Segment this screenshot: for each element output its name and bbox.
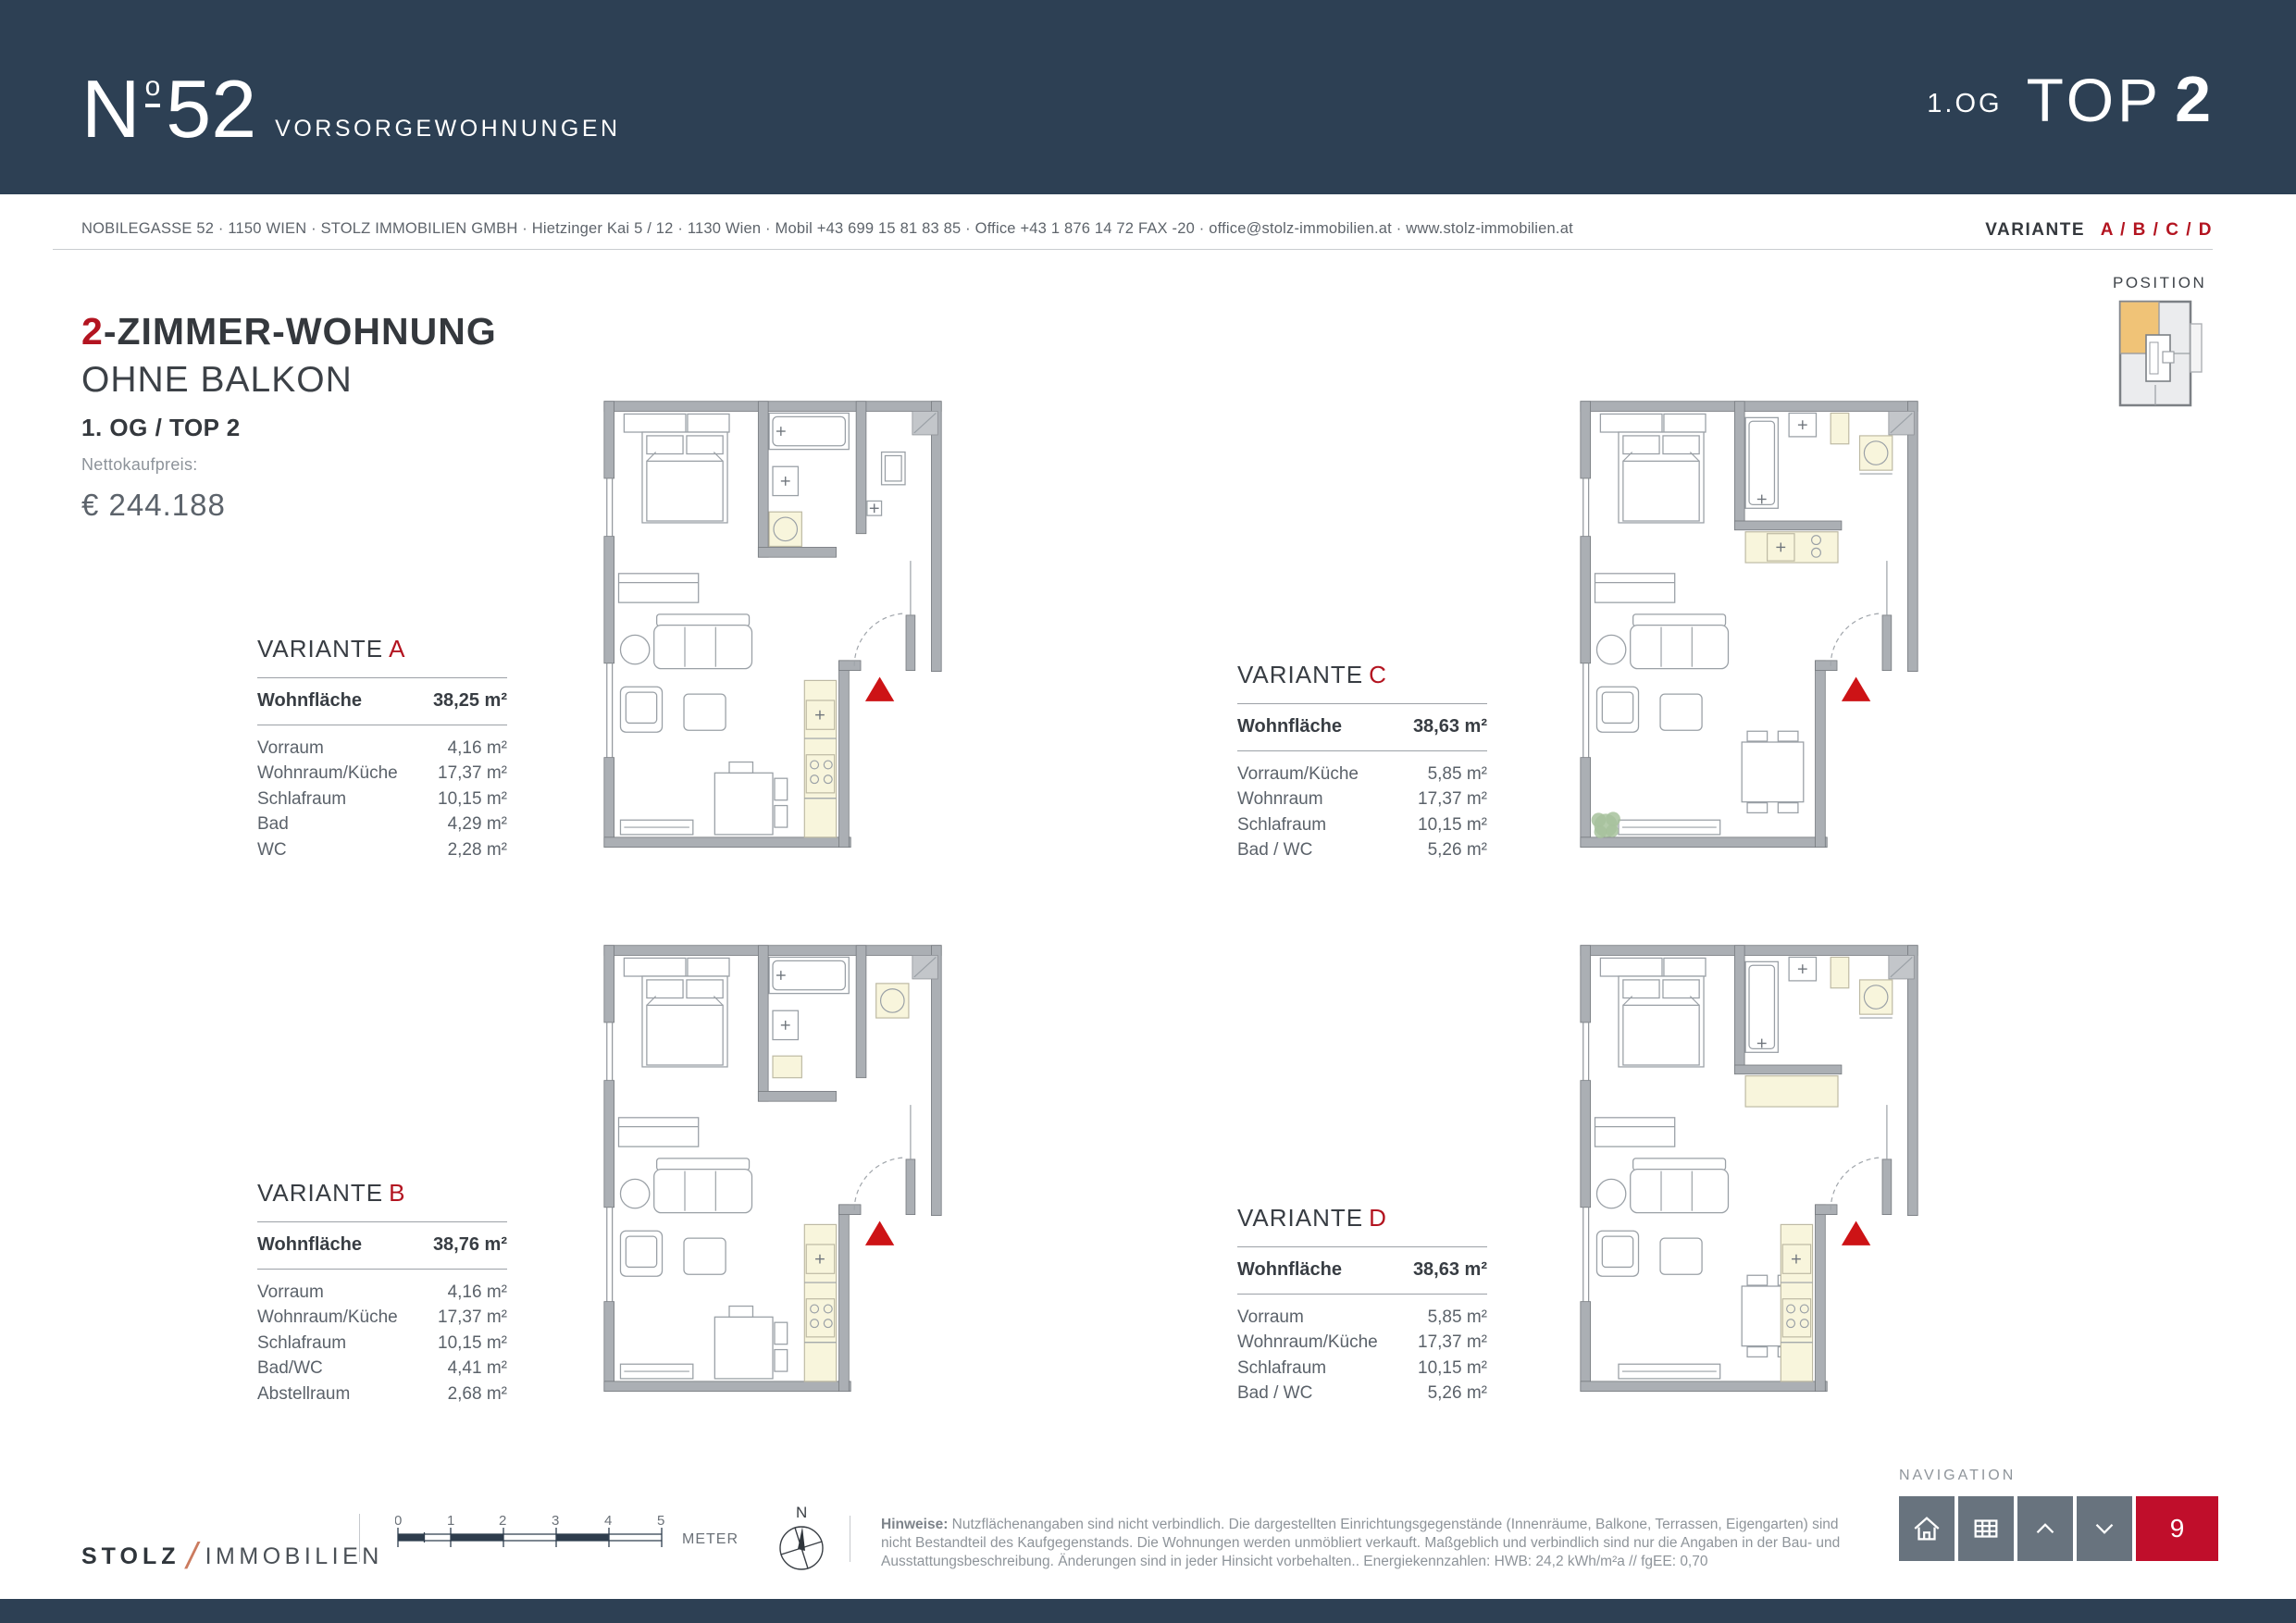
room-label: Schlafraum — [257, 787, 346, 811]
room-label: Vorraum — [257, 1280, 324, 1305]
next-page-button[interactable] — [2077, 1496, 2132, 1561]
total-area-row: Wohnfläche38,63 m² — [1237, 704, 1487, 750]
total-area-value: 38,76 m² — [433, 1234, 507, 1256]
room-area-value: 10,15 m² — [1418, 812, 1487, 837]
variant-heading-letter: D — [1369, 1204, 1387, 1232]
room-row: Bad/WC4,41 m² — [257, 1356, 507, 1381]
room-row: Vorraum/Küche5,85 m² — [1237, 762, 1487, 787]
apartment-floor-top: 1. OG / TOP 2 — [81, 414, 497, 442]
price-label: Nettokaufpreis: — [81, 455, 497, 475]
page: No52 VORSORGEWOHNUNGEN 1.OG TOP 2 NOBILE… — [0, 0, 2296, 1623]
room-row: Schlafraum10,15 m² — [1237, 1356, 1487, 1381]
compass-icon: N — [764, 1503, 838, 1580]
room-row: Schlafraum10,15 m² — [257, 787, 507, 811]
variant-heading-label: VARIANTE — [257, 1179, 383, 1207]
room-row: Wohnraum17,37 m² — [1237, 787, 1487, 811]
apartment-info: 2-ZIMMER-WOHNUNG OHNE BALKON 1. OG / TOP… — [81, 309, 497, 523]
room-row: Bad / WC5,26 m² — [1237, 1381, 1487, 1406]
rooms-count: 2 — [81, 310, 104, 353]
top-number: 2 — [2175, 68, 2211, 130]
variant-heading-letter: A — [389, 635, 405, 663]
apartment-title-rest: -ZIMMER-WOHNUNG — [104, 310, 497, 353]
floorplan-variant-a — [597, 389, 950, 870]
variant-heading-letter: C — [1369, 661, 1387, 688]
variant-table-a: VARIANTEA Wohnfläche38,25 m² Vorraum4,16… — [257, 635, 507, 862]
price-value: € 244.188 — [81, 488, 497, 523]
room-area-value: 4,29 m² — [448, 811, 507, 836]
room-label: Vorraum — [1237, 1305, 1304, 1330]
room-row: Schlafraum10,15 m² — [257, 1331, 507, 1356]
floorplan-variant-c — [1573, 389, 1927, 870]
room-label: Bad/WC — [257, 1356, 323, 1381]
room-area-value: 4,16 m² — [448, 1280, 507, 1305]
legal-notes-label: Hinweise: — [881, 1517, 948, 1532]
room-area-value: 5,85 m² — [1428, 1305, 1487, 1330]
scale-tick-label: 0 — [395, 1513, 402, 1529]
total-area-row: Wohnfläche38,76 m² — [257, 1222, 507, 1269]
total-area-label: Wohnfläche — [257, 1234, 362, 1256]
logo-degree: o — [145, 73, 161, 107]
scale-tick-label: 1 — [447, 1513, 454, 1529]
variant-heading: VARIANTEC — [1237, 661, 1487, 689]
logo-n: N — [81, 68, 143, 150]
previous-page-button[interactable] — [2017, 1496, 2073, 1561]
footer-divider — [359, 1514, 360, 1562]
room-row: WC2,28 m² — [257, 837, 507, 862]
overview-grid-button[interactable] — [1958, 1496, 2014, 1561]
total-area-value: 38,63 m² — [1413, 1259, 1487, 1281]
chevron-up-icon — [2029, 1513, 2061, 1544]
header-unit-title: 1.OG TOP 2 — [1927, 68, 2211, 130]
header-bar: No52 VORSORGEWOHNUNGEN 1.OG TOP 2 — [0, 0, 2296, 194]
floor-label: 1.OG — [1927, 89, 2002, 130]
room-label: Bad / WC — [1237, 837, 1312, 862]
room-label: Schlafraum — [1237, 812, 1326, 837]
room-area-value: 10,15 m² — [438, 1331, 507, 1356]
project-logo: No52 VORSORGEWOHNUNGEN — [81, 68, 621, 150]
position-minimap — [2115, 296, 2203, 417]
variant-table-c: VARIANTEC Wohnfläche38,63 m² Vorraum/Küc… — [1237, 661, 1487, 863]
variant-heading: VARIANTEA — [257, 635, 507, 663]
variant-table-d: VARIANTED Wohnfläche38,63 m² Vorraum5,85… — [1237, 1204, 1487, 1406]
company-logo-stolz: STOLZ — [81, 1543, 180, 1570]
page-number-button[interactable]: 9 — [2136, 1496, 2218, 1561]
room-label: Bad — [257, 811, 289, 836]
room-rows: Vorraum5,85 m²Wohnraum/Küche17,37 m²Schl… — [1237, 1295, 1487, 1406]
logo-brand-text: VORSORGEWOHNUNGEN — [275, 116, 620, 150]
total-area-row: Wohnfläche38,63 m² — [1237, 1247, 1487, 1294]
logo-number: 52 — [166, 68, 256, 150]
variant-heading: VARIANTED — [1237, 1204, 1487, 1233]
page-number: 9 — [2170, 1514, 2185, 1543]
room-area-value: 10,15 m² — [438, 787, 507, 811]
total-area-label: Wohnfläche — [257, 690, 362, 712]
room-area-value: 2,28 m² — [448, 837, 507, 862]
room-area-value: 5,85 m² — [1428, 762, 1487, 787]
room-label: Wohnraum/Küche — [257, 1305, 398, 1330]
navigation-label: NAVIGATION — [1899, 1468, 2016, 1484]
total-area-label: Wohnfläche — [1237, 716, 1342, 737]
scale-tick-label: 2 — [499, 1513, 506, 1529]
room-rows: Vorraum4,16 m²Wohnraum/Küche17,37 m²Schl… — [257, 1270, 507, 1406]
chevron-down-icon — [2089, 1513, 2120, 1544]
top-word: TOP — [2027, 69, 2162, 130]
scale-tick-label: 5 — [657, 1513, 664, 1529]
variant-heading-label: VARIANTE — [1237, 661, 1363, 688]
position-label: POSITION — [2113, 274, 2202, 292]
room-row: Schlafraum10,15 m² — [1237, 812, 1487, 837]
room-area-value: 10,15 m² — [1418, 1356, 1487, 1381]
company-logo-slash: / — [183, 1538, 202, 1575]
legal-notes: Hinweise: Nutzflächenangaben sind nicht … — [881, 1516, 1864, 1570]
room-area-value: 17,37 m² — [1418, 787, 1487, 811]
room-row: Vorraum4,16 m² — [257, 736, 507, 761]
room-label: Vorraum — [257, 736, 324, 761]
apartment-subtitle: OHNE BALKON — [81, 360, 497, 401]
room-label: Abstellraum — [257, 1381, 350, 1406]
room-rows: Vorraum4,16 m²Wohnraum/Küche17,37 m²Schl… — [257, 725, 507, 862]
room-row: Wohnraum/Küche17,37 m² — [257, 1305, 507, 1330]
room-row: Wohnraum/Küche17,37 m² — [1237, 1330, 1487, 1355]
variant-heading-label: VARIANTE — [1237, 1204, 1363, 1232]
room-label: Wohnraum — [1237, 787, 1323, 811]
compass-north-label: N — [796, 1504, 807, 1521]
home-icon — [1911, 1513, 1942, 1544]
legal-notes-text: Nutzflächenangaben sind nicht verbindlic… — [881, 1517, 1840, 1569]
room-area-value: 4,16 m² — [448, 736, 507, 761]
company-logo: STOLZ / IMMOBILIEN — [81, 1538, 383, 1575]
room-label: Bad / WC — [1237, 1381, 1312, 1406]
floorplan-variant-b — [597, 933, 950, 1414]
room-area-value: 5,26 m² — [1428, 1381, 1487, 1406]
room-area-value: 17,37 m² — [438, 761, 507, 786]
footer-bar — [0, 1599, 2296, 1623]
room-area-value: 4,41 m² — [448, 1356, 507, 1381]
variant-table-b: VARIANTEB Wohnfläche38,76 m² Vorraum4,16… — [257, 1179, 507, 1406]
apartment-title: 2-ZIMMER-WOHNUNG — [81, 309, 497, 354]
room-row: Wohnraum/Küche17,37 m² — [257, 761, 507, 786]
total-area-value: 38,63 m² — [1413, 716, 1487, 737]
room-row: Vorraum5,85 m² — [1237, 1305, 1487, 1330]
room-area-value: 17,37 m² — [1418, 1330, 1487, 1355]
room-row: Bad / WC5,26 m² — [1237, 837, 1487, 862]
navigation-buttons: 9 — [1899, 1496, 2218, 1561]
room-rows: Vorraum/Küche5,85 m²Wohnraum17,37 m²Schl… — [1237, 751, 1487, 863]
room-label: Vorraum/Küche — [1237, 762, 1359, 787]
room-row: Vorraum4,16 m² — [257, 1280, 507, 1305]
room-label: Schlafraum — [257, 1331, 346, 1356]
room-area-value: 5,26 m² — [1428, 837, 1487, 862]
total-area-label: Wohnfläche — [1237, 1259, 1342, 1281]
room-area-value: 17,37 m² — [438, 1305, 507, 1330]
scale-tick-label: 4 — [604, 1513, 612, 1529]
total-area-value: 38,25 m² — [433, 690, 507, 712]
floorplan-variant-d — [1573, 933, 1927, 1414]
header-divider — [53, 249, 2213, 250]
room-label: Schlafraum — [1237, 1356, 1326, 1381]
scale-unit-label: METER — [682, 1531, 738, 1547]
variant-switcher-label: VARIANTE — [1985, 220, 2085, 240]
room-row: Bad4,29 m² — [257, 811, 507, 836]
address-line: NOBILEGASSE 52 · 1150 WIEN · STOLZ IMMOB… — [81, 220, 1573, 238]
variant-heading: VARIANTEB — [257, 1179, 507, 1208]
scale-tick-label: 3 — [552, 1513, 559, 1529]
grid-icon — [1970, 1513, 2002, 1544]
variant-heading-label: VARIANTE — [257, 635, 383, 663]
company-logo-immobilien: IMMOBILIEN — [205, 1543, 383, 1570]
footer-divider — [850, 1516, 850, 1562]
room-label: WC — [257, 837, 287, 862]
home-button[interactable] — [1899, 1496, 1955, 1561]
room-row: Abstellraum2,68 m² — [257, 1381, 507, 1406]
variant-switcher: VARIANTE A / B / C / D — [1985, 220, 2213, 241]
variant-switcher-options[interactable]: A / B / C / D — [2101, 220, 2213, 240]
room-area-value: 2,68 m² — [448, 1381, 507, 1406]
total-area-row: Wohnfläche38,25 m² — [257, 678, 507, 725]
room-label: Wohnraum/Küche — [1237, 1330, 1378, 1355]
variant-heading-letter: B — [389, 1179, 405, 1207]
scale-bar: 0 1 2 3 4 5 METER — [395, 1512, 765, 1564]
room-label: Wohnraum/Küche — [257, 761, 398, 786]
